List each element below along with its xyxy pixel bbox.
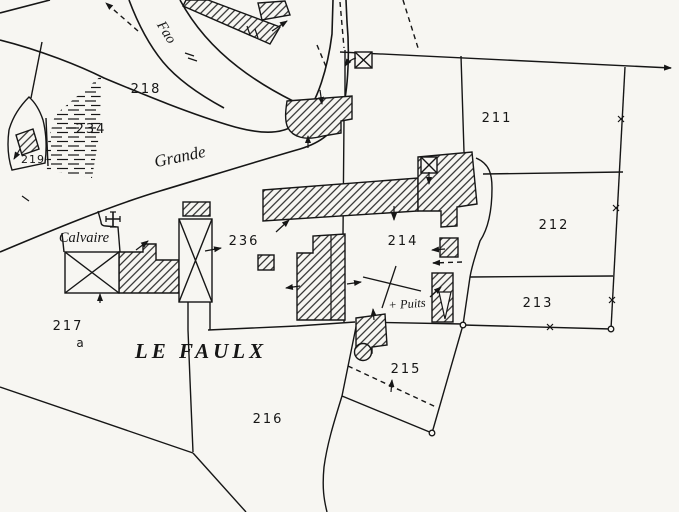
- parcel-label-234: 234: [76, 122, 107, 137]
- boundary-east: [611, 67, 625, 329]
- tick-road-grande: [22, 196, 29, 201]
- labels: 211 212 213 214 215 216 217 a 218 219 23…: [21, 18, 569, 427]
- building-fao-small: [258, 1, 290, 20]
- building-219: [16, 129, 39, 155]
- cadastral-map: 211 212 213 214 215 216 217 a 218 219 23…: [0, 0, 679, 512]
- building-boot-round: [355, 344, 372, 361]
- building-calvaire-east: [119, 244, 179, 293]
- boundary-211-top: [340, 52, 671, 68]
- building-roadside-crossed: [355, 52, 372, 68]
- parcel-label-212: 212: [539, 218, 570, 233]
- node-215-se: [429, 430, 435, 436]
- tick-x-east-1: [618, 116, 624, 122]
- node-213-se: [608, 326, 614, 332]
- boundary-214-211: [461, 56, 464, 152]
- parcel-label-217: 217: [53, 319, 84, 334]
- dashed-track-right: [403, 0, 419, 51]
- building-barn-crossed: [179, 219, 212, 302]
- parcel-label-215: 215: [391, 362, 422, 377]
- boundary-nodes: [429, 322, 614, 436]
- parcel-label-214: 214: [388, 234, 419, 249]
- boundary-216-east-curve: [323, 322, 357, 512]
- arrow-215: [391, 380, 392, 392]
- parcel-label-213: 213: [523, 296, 554, 311]
- building-tower-crossed: [421, 157, 437, 173]
- parcel-label-218: 218: [131, 82, 162, 97]
- boundary-building-row-south: [208, 322, 355, 330]
- street-label-fao: Fao: [153, 18, 179, 47]
- boundary-215-south: [342, 396, 432, 433]
- landmark-label-calvaire: Calvaire: [59, 230, 110, 246]
- road-top-left-upper-edge: [0, 0, 50, 13]
- building-central: [297, 234, 345, 320]
- dashed-arrow-214-east: [433, 262, 462, 263]
- street-label-grande: Grande: [153, 142, 208, 171]
- building-small-above-barn: [183, 202, 210, 216]
- dashed-track-left: [340, 2, 344, 48]
- parcel-label-217a: a: [76, 336, 83, 350]
- building-north: [286, 96, 352, 138]
- dashed-roadside: [317, 45, 327, 69]
- calvaire-cross-icon: [106, 212, 120, 227]
- boundary-215-east: [432, 325, 463, 433]
- boundary-212-213: [470, 276, 613, 277]
- boundary-211-212: [483, 172, 623, 174]
- landmark-label-puits: + Puits: [388, 296, 426, 313]
- boundary-213-south: [463, 325, 611, 329]
- arrow-central-east: [347, 282, 361, 284]
- parcel-label-219: 219: [21, 153, 45, 166]
- boundary-216-southwest: [193, 453, 246, 512]
- building-calvaire-crossed: [65, 252, 119, 293]
- node-215-ne: [460, 322, 466, 328]
- building-long-bar: [263, 178, 418, 221]
- arrow-long-bar: [276, 220, 289, 232]
- place-name-label: LE FAULX: [134, 339, 267, 363]
- parcel-label-216: 216: [253, 412, 284, 427]
- map-canvas: 211 212 213 214 215 216 217 a 218 219 23…: [0, 0, 679, 512]
- tick-fao: [185, 53, 197, 61]
- arrow-219: [14, 149, 20, 159]
- dashed-boundary-nw: [106, 3, 138, 31]
- building-236-shed: [258, 255, 274, 270]
- boundary-216-west-neck: [188, 302, 210, 330]
- building-214-shed: [440, 238, 458, 257]
- parcel-label-236: 236: [229, 234, 260, 249]
- parcel-label-211: 211: [482, 111, 513, 126]
- boundary-217-south: [0, 387, 193, 453]
